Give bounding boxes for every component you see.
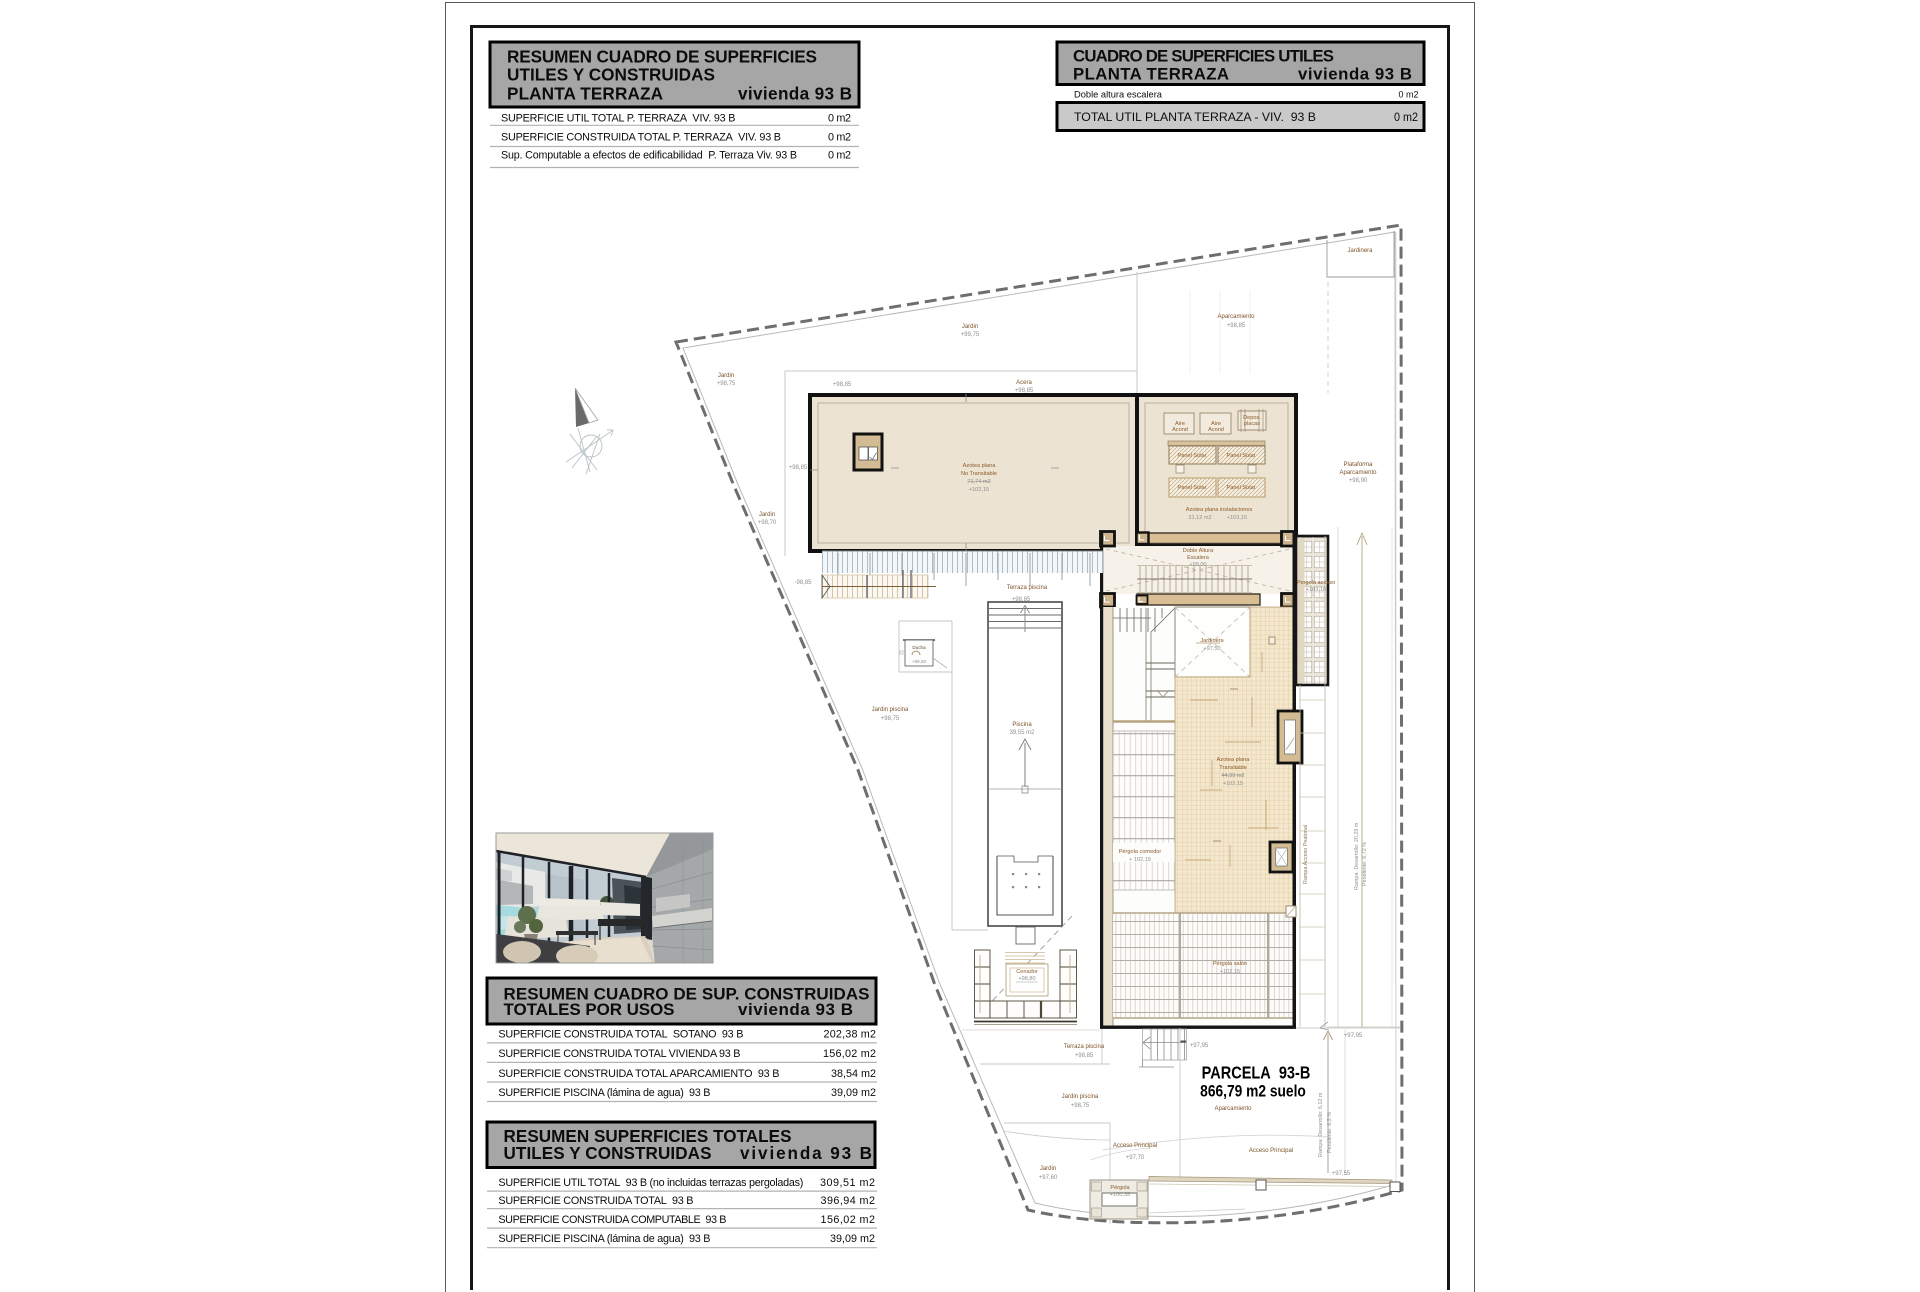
- svg-text:TOTAL UTIL PLANTA TERRAZA - VI: TOTAL UTIL PLANTA TERRAZA - VIV. 93 B: [1074, 110, 1316, 124]
- svg-text:CUADRO DE SUPERFICIES UTILES: CUADRO DE SUPERFICIES UTILES: [1073, 47, 1334, 66]
- svg-text:0 m2: 0 m2: [828, 132, 851, 144]
- svg-text:38,54 m2: 38,54 m2: [831, 1068, 876, 1080]
- svg-text:202,38 m2: 202,38 m2: [824, 1029, 877, 1041]
- svg-text:156,02 m2: 156,02 m2: [821, 1214, 876, 1226]
- svg-text:vivienda 93 B: vivienda 93 B: [738, 1000, 853, 1019]
- svg-text:vivienda 93 B: vivienda 93 B: [740, 1144, 872, 1163]
- svg-text:SUPERFICIE UTIL TOTAL P. TERRA: SUPERFICIE UTIL TOTAL P. TERRAZA VIV. 93…: [501, 113, 736, 125]
- svg-text:UTILES Y CONSTRUIDAS: UTILES Y CONSTRUIDAS: [507, 65, 715, 85]
- svg-text:SUPERFICIE CONSTRUIDA TOTAL 9: SUPERFICIE CONSTRUIDA TOTAL 93 B: [498, 1195, 693, 1207]
- svg-text:309,51 m2: 309,51 m2: [820, 1177, 875, 1189]
- svg-text:Doble altura escalera: Doble altura escalera: [1074, 90, 1163, 101]
- svg-text:SUPERFICIE CONSTRUIDA COMPUTAB: SUPERFICIE CONSTRUIDA COMPUTABLE 93 B: [498, 1214, 726, 1226]
- svg-text:39,09 m2: 39,09 m2: [830, 1233, 875, 1245]
- svg-text:vivienda 93 B: vivienda 93 B: [1298, 65, 1412, 84]
- svg-text:TOTALES POR USOS: TOTALES POR USOS: [504, 1000, 675, 1019]
- svg-text:SUPERFICIE PISCINA (lámina de: SUPERFICIE PISCINA (lámina de agua) 93 B: [498, 1087, 710, 1099]
- svg-text:SUPERFICIE CONSTRUIDA TOTAL P.: SUPERFICIE CONSTRUIDA TOTAL P. TERRAZA V…: [501, 132, 781, 144]
- svg-text:RESUMEN SUPERFICIES TOTALES: RESUMEN SUPERFICIES TOTALES: [504, 1127, 792, 1146]
- svg-text:0 m2: 0 m2: [828, 150, 851, 162]
- svg-text:39,09 m2: 39,09 m2: [831, 1087, 876, 1099]
- svg-text:396,94 m2: 396,94 m2: [821, 1195, 876, 1207]
- svg-text:SUPERFICIE CONSTRUIDA TOTAL S: SUPERFICIE CONSTRUIDA TOTAL SOTANO 93 B: [498, 1029, 743, 1041]
- svg-text:0 m2: 0 m2: [1399, 90, 1419, 101]
- svg-text:vivienda 93 B: vivienda 93 B: [738, 83, 852, 103]
- svg-text:UTILES Y CONSTRUIDAS: UTILES Y CONSTRUIDAS: [504, 1144, 712, 1163]
- svg-text:SUPERFICIE UTIL TOTAL 93 B (n: SUPERFICIE UTIL TOTAL 93 B (no incluidas…: [498, 1177, 803, 1189]
- svg-text:PLANTA TERRAZA: PLANTA TERRAZA: [1073, 65, 1229, 84]
- svg-text:0 m2: 0 m2: [1394, 110, 1418, 124]
- svg-text:SUPERFICIE CONSTRUIDA TOTAL AP: SUPERFICIE CONSTRUIDA TOTAL APARCAMIENTO…: [498, 1068, 779, 1080]
- svg-text:0 m2: 0 m2: [828, 113, 851, 125]
- svg-text:SUPERFICIE CONSTRUIDA TOTAL VI: SUPERFICIE CONSTRUIDA TOTAL VIVIENDA 93 …: [498, 1048, 740, 1060]
- svg-text:PLANTA TERRAZA: PLANTA TERRAZA: [507, 83, 663, 103]
- svg-text:Sup. Computable a efectos de e: Sup. Computable a efectos de edificabili…: [501, 150, 797, 162]
- svg-text:SUPERFICIE PISCINA (lámina de: SUPERFICIE PISCINA (lámina de agua) 93 B: [498, 1233, 710, 1245]
- svg-text:156,02 m2: 156,02 m2: [823, 1048, 876, 1060]
